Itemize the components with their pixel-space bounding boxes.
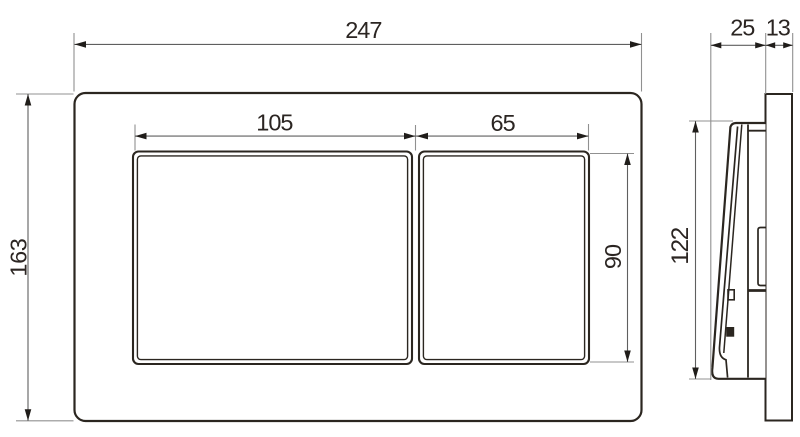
svg-text:122: 122 [667, 227, 694, 264]
svg-text:163: 163 [6, 238, 32, 276]
svg-text:90: 90 [600, 244, 626, 269]
svg-text:25: 25 [730, 15, 755, 41]
svg-text:13: 13 [766, 15, 791, 41]
svg-text:105: 105 [256, 109, 293, 135]
svg-text:65: 65 [491, 110, 516, 136]
svg-text:247: 247 [345, 17, 381, 43]
